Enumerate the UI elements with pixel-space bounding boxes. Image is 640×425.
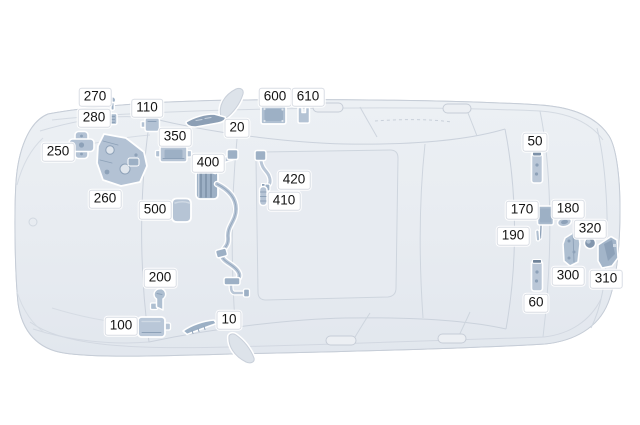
part-500-pad [172, 199, 191, 223]
part-320-grommet [584, 237, 595, 248]
part-270-screw [109, 97, 115, 110]
car-top-view-illustration [0, 0, 640, 425]
car-body [15, 88, 620, 362]
harness-elbow-connector [215, 248, 228, 259]
part-300-bracket [563, 233, 580, 266]
part-50-strip [532, 152, 543, 184]
door-handle-rear-top [443, 104, 471, 113]
part-600-module [261, 106, 286, 124]
door-handle-front-top [313, 103, 343, 112]
part-60-strip [532, 260, 543, 292]
part-410-sensor [260, 184, 268, 206]
part-100-module [138, 317, 171, 337]
door-handle-rear-bottom [438, 334, 466, 343]
door-handle-front-bottom [326, 336, 356, 345]
harness-end-connector [224, 278, 240, 286]
harness-connector-top [227, 150, 238, 160]
part-280-module [104, 114, 117, 125]
sunroof-outline [256, 150, 398, 300]
diagram-canvas: 1020506010011017018019020025026027028030… [0, 0, 640, 425]
part-350-control-module [156, 146, 192, 162]
harness-tail-connector [244, 289, 250, 297]
